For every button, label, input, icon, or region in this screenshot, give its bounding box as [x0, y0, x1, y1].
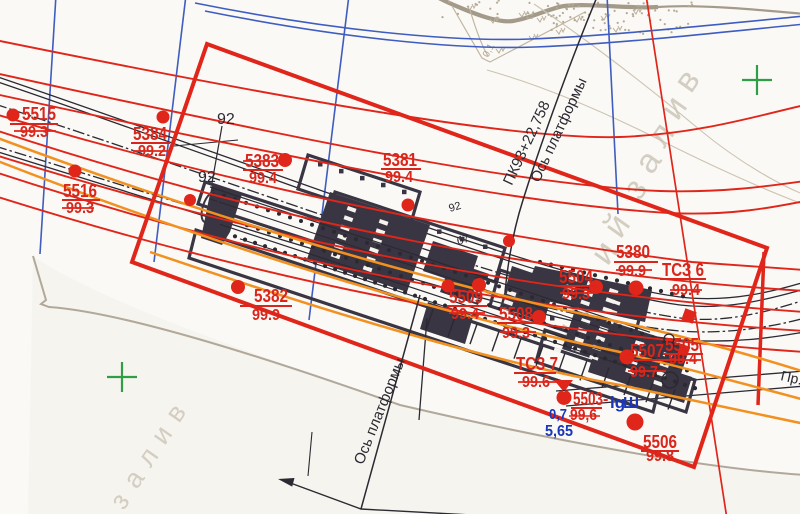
svg-text:92: 92 — [217, 111, 235, 128]
svg-text:ТСЗ 6: ТСЗ 6 — [662, 260, 704, 280]
svg-text:5384: 5384 — [133, 124, 167, 144]
svg-text:99.3: 99.3 — [562, 286, 590, 303]
svg-text:99.4: 99.4 — [385, 169, 413, 186]
svg-text:5503: 5503 — [573, 389, 603, 409]
svg-text:0,7: 0,7 — [549, 406, 567, 423]
svg-text:5508: 5508 — [499, 304, 533, 324]
svg-text:99.7: 99.7 — [630, 364, 658, 381]
svg-text:5509: 5509 — [449, 287, 483, 307]
svg-text:5515: 5515 — [22, 104, 56, 124]
svg-text:5516: 5516 — [63, 181, 97, 201]
svg-text:5380: 5380 — [616, 242, 650, 262]
svg-text:99.8: 99.8 — [646, 448, 674, 465]
svg-text:5507: 5507 — [630, 341, 664, 361]
svg-text:5,65: 5,65 — [545, 423, 573, 440]
svg-text:99.4: 99.4 — [451, 306, 479, 323]
svg-text:5504: 5504 — [559, 267, 593, 287]
svg-text:92: 92 — [198, 169, 216, 186]
svg-text:ТСЗ 7: ТСЗ 7 — [516, 354, 558, 374]
svg-text:99.3: 99.3 — [20, 124, 48, 141]
svg-text:5381: 5381 — [383, 150, 417, 170]
svg-text:-: - — [603, 391, 608, 408]
svg-text:5382: 5382 — [254, 286, 288, 306]
svg-text:99.4: 99.4 — [249, 170, 277, 187]
svg-text:99.3: 99.3 — [502, 325, 530, 342]
svg-text:99.9: 99.9 — [618, 263, 646, 280]
svg-text:99.9: 99.9 — [252, 307, 280, 324]
svg-text:Ш: Ш — [623, 395, 639, 412]
